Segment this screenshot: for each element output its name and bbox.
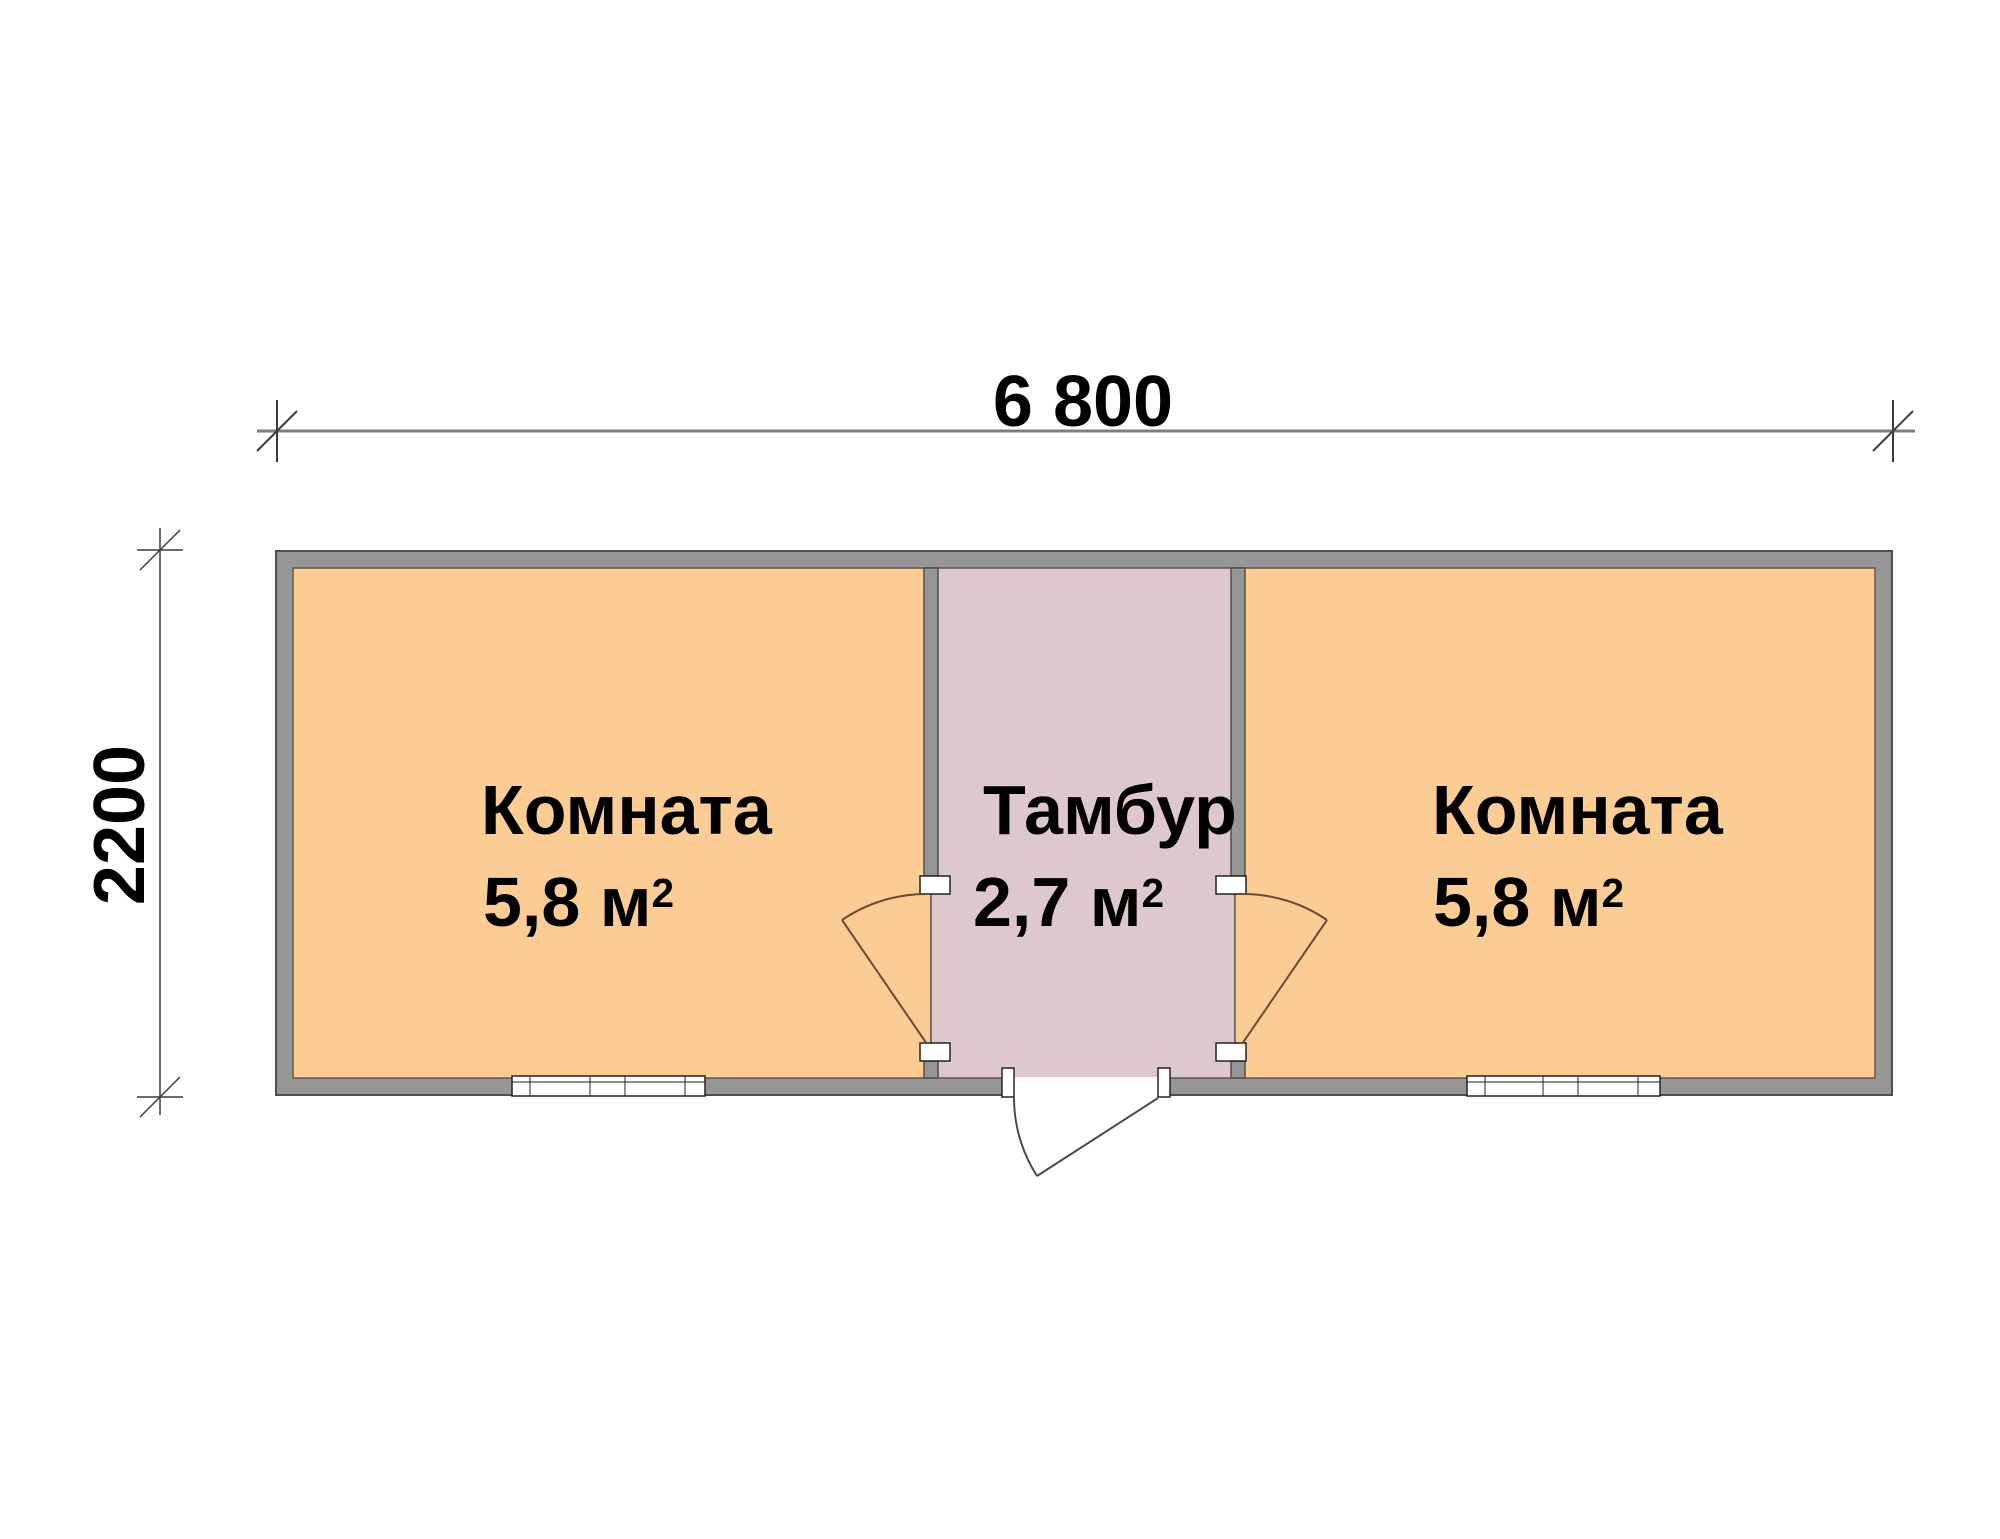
room-left-area-value: 5,8 м xyxy=(483,863,652,941)
room-left-name: Комната xyxy=(481,775,772,845)
room-left-area-sup: 2 xyxy=(652,870,675,916)
floor-plan-drawing xyxy=(0,0,2000,1539)
floor-plan-page: 6 800 2200 Комната 5,8 м2 Тамбур 2,7 м2 … xyxy=(0,0,2000,1539)
vestibule-area-value: 2,7 м xyxy=(973,863,1142,941)
door-jamb-right-bottom xyxy=(1216,1043,1246,1061)
entrance-jamb-left xyxy=(1002,1068,1014,1097)
room-right-area: 5,8 м2 xyxy=(1433,867,1624,937)
door-jamb-right-top xyxy=(1216,876,1246,894)
room-right-area-value: 5,8 м xyxy=(1433,863,1602,941)
dimension-height-label: 2200 xyxy=(84,745,156,905)
dimension-width-label: 6 800 xyxy=(993,366,1173,438)
window-left xyxy=(512,1076,705,1096)
room-right-name: Комната xyxy=(1432,775,1723,845)
vestibule-name: Тамбур xyxy=(983,775,1237,845)
door-entrance xyxy=(1014,1097,1158,1176)
entrance-door-leaf xyxy=(1037,1098,1158,1176)
entrance-jamb-right xyxy=(1158,1068,1170,1097)
door-jamb-left-bottom xyxy=(920,1043,950,1061)
door-jamb-left-top xyxy=(920,876,950,894)
entrance-door-arc xyxy=(1014,1097,1037,1176)
room-left-area: 5,8 м2 xyxy=(483,867,674,937)
vestibule-area: 2,7 м2 xyxy=(973,867,1164,937)
vestibule-area-sup: 2 xyxy=(1142,870,1165,916)
window-right xyxy=(1467,1076,1660,1096)
room-right-area-sup: 2 xyxy=(1602,870,1625,916)
entrance-opening xyxy=(1014,1077,1158,1097)
